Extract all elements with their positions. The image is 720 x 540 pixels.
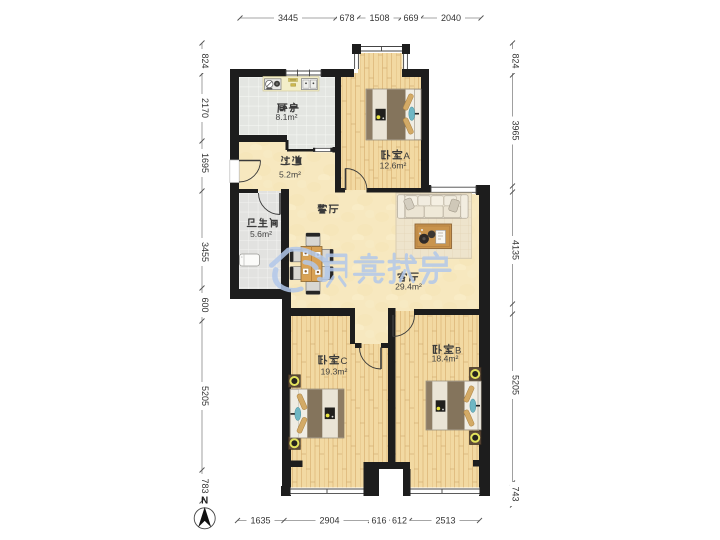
svg-text:5.6m²: 5.6m² [250,229,272,239]
svg-text:616: 616 [371,516,386,526]
svg-text:8.1m²: 8.1m² [276,112,298,122]
svg-text:600: 600 [200,297,210,312]
svg-text:3445: 3445 [278,13,298,23]
svg-text:18.4m²: 18.4m² [432,354,459,364]
svg-text:29.4m²: 29.4m² [395,281,422,291]
svg-text:N: N [201,496,208,507]
svg-text:612: 612 [392,516,407,526]
svg-text:C: C [341,356,348,367]
svg-text:678: 678 [339,13,354,23]
svg-text:2513: 2513 [435,516,455,526]
svg-text:824: 824 [200,53,210,68]
svg-text:1695: 1695 [200,153,210,173]
svg-text:743: 743 [511,486,521,501]
svg-text:5.2m²: 5.2m² [279,169,301,179]
svg-text:824: 824 [511,53,521,68]
svg-text:2904: 2904 [319,516,339,526]
svg-text:3455: 3455 [200,242,210,262]
svg-text:783: 783 [200,478,210,493]
svg-text:3965: 3965 [511,120,521,140]
svg-text:1635: 1635 [250,516,270,526]
svg-text:669: 669 [403,13,418,23]
svg-text:2040: 2040 [441,13,461,23]
svg-text:5205: 5205 [200,386,210,406]
svg-text:12.6m²: 12.6m² [380,160,407,170]
svg-text:5205: 5205 [511,375,521,395]
svg-text:19.3m²: 19.3m² [321,367,348,377]
svg-text:1508: 1508 [369,13,389,23]
svg-text:2170: 2170 [200,98,210,118]
svg-text:4135: 4135 [511,240,521,260]
